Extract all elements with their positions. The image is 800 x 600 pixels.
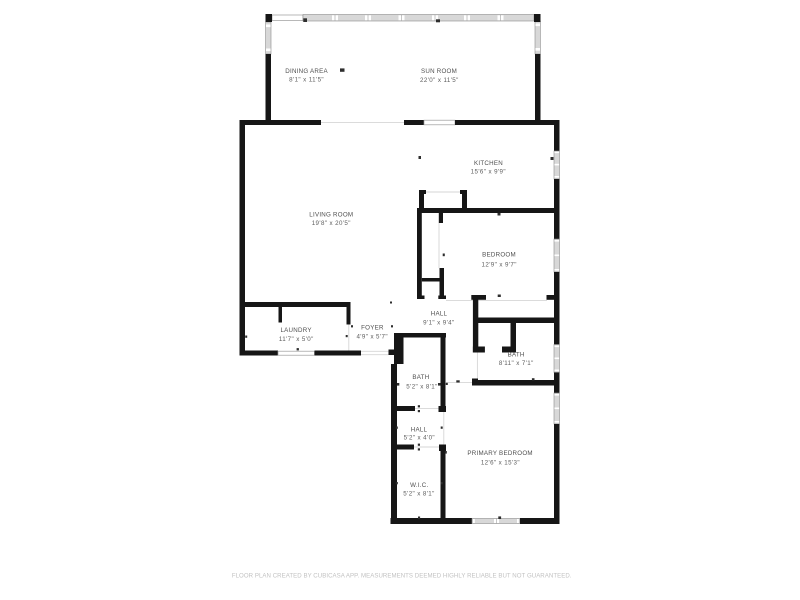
svg-text:PRIMARY BEDROOM: PRIMARY BEDROOM xyxy=(467,450,532,457)
svg-text:19'8" x 20'5": 19'8" x 20'5" xyxy=(312,220,351,227)
svg-text:9'1" x 9'4": 9'1" x 9'4" xyxy=(423,320,454,327)
svg-text:SUN ROOM: SUN ROOM xyxy=(421,68,457,75)
svg-text:FLOOR PLAN CREATED BY CUBICASA: FLOOR PLAN CREATED BY CUBICASA APP. MEAS… xyxy=(232,573,572,580)
svg-text:BATH: BATH xyxy=(508,351,525,358)
svg-text:KITCHEN: KITCHEN xyxy=(474,160,503,167)
svg-text:BATH: BATH xyxy=(412,374,429,381)
svg-text:W.I.C.: W.I.C. xyxy=(410,482,428,489)
svg-text:HALL: HALL xyxy=(411,427,428,434)
svg-text:LAUNDRY: LAUNDRY xyxy=(280,327,311,334)
svg-text:8'1" x 11'5": 8'1" x 11'5" xyxy=(289,77,324,84)
svg-text:5'2" x 8'1": 5'2" x 8'1" xyxy=(406,383,437,390)
svg-text:11'7" x 5'0": 11'7" x 5'0" xyxy=(279,336,314,343)
svg-text:FOYER: FOYER xyxy=(361,324,384,331)
svg-text:12'9" x 9'7": 12'9" x 9'7" xyxy=(482,262,517,269)
svg-text:HALL: HALL xyxy=(431,311,448,318)
svg-text:12'6" x 15'3": 12'6" x 15'3" xyxy=(481,460,520,467)
svg-text:8'11" x 7'1": 8'11" x 7'1" xyxy=(499,360,534,367)
svg-text:5'2" x 8'1": 5'2" x 8'1" xyxy=(403,491,434,498)
svg-text:BEDROOM: BEDROOM xyxy=(482,252,516,259)
svg-text:5'2" x 4'0": 5'2" x 4'0" xyxy=(404,435,435,442)
svg-text:22'0" x 11'5": 22'0" x 11'5" xyxy=(420,77,459,84)
svg-text:DINING AREA: DINING AREA xyxy=(285,68,328,75)
svg-text:4'9" x 5'7": 4'9" x 5'7" xyxy=(356,334,387,341)
svg-text:15'6" x 9'9": 15'6" x 9'9" xyxy=(471,168,506,175)
svg-text:LIVING ROOM: LIVING ROOM xyxy=(309,212,353,219)
